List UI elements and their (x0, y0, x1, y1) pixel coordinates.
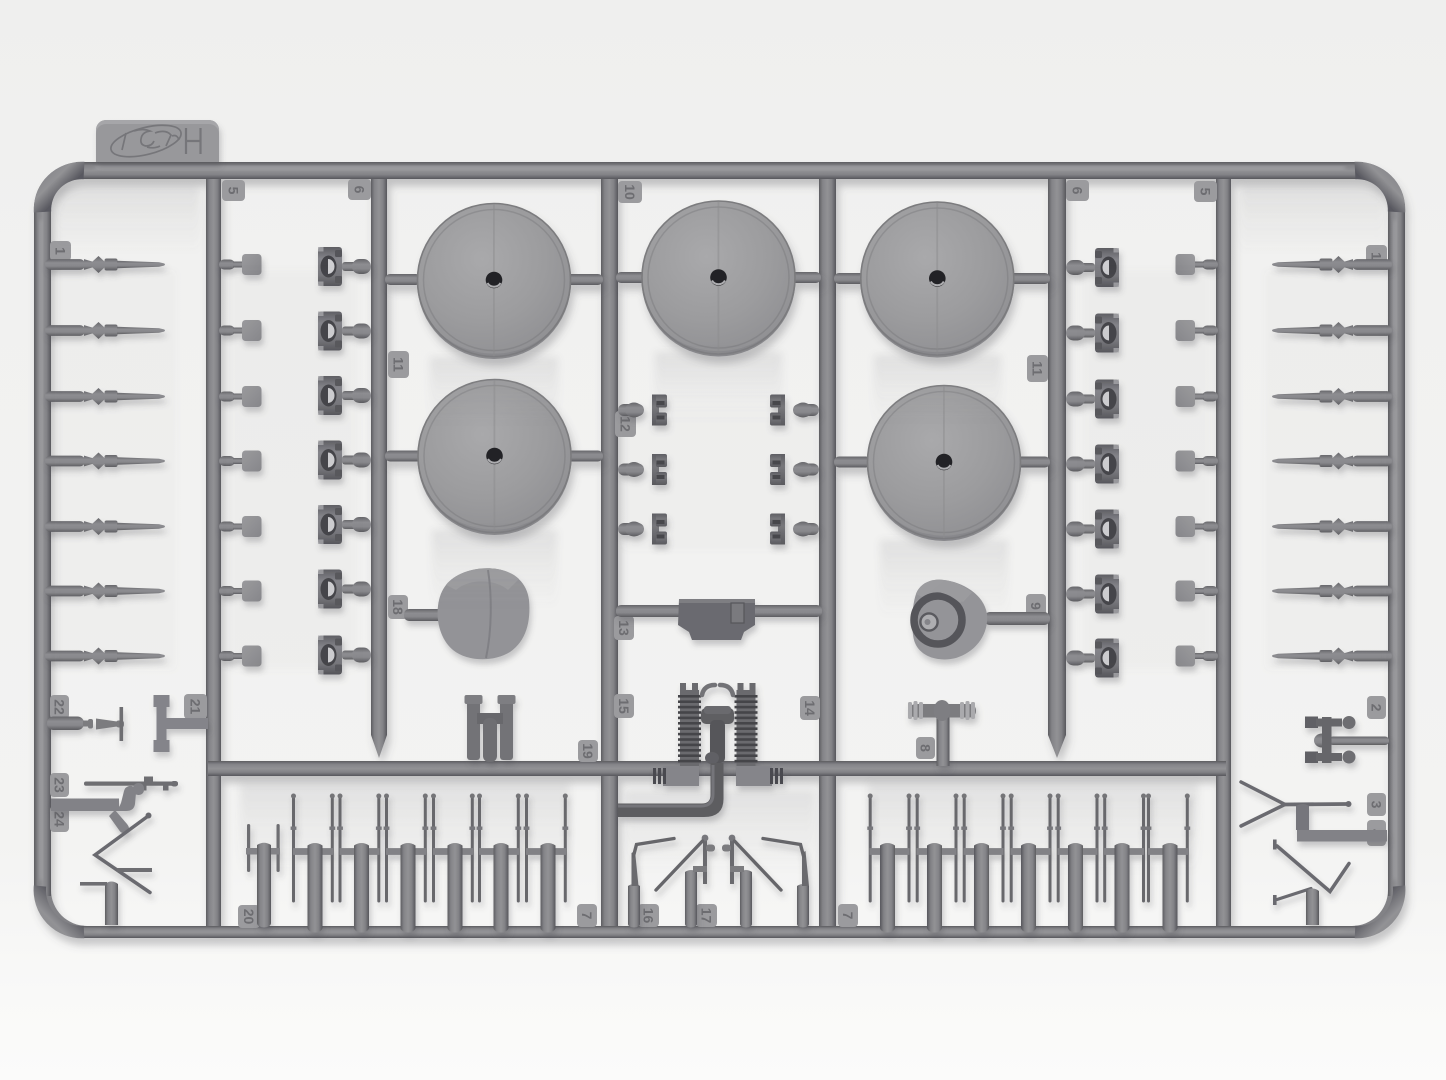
svg-text:8: 8 (918, 744, 934, 752)
svg-text:22: 22 (52, 699, 68, 715)
svg-text:9: 9 (1028, 602, 1044, 610)
svg-text:24: 24 (52, 811, 68, 827)
svg-text:6: 6 (1070, 187, 1086, 195)
svg-text:5: 5 (1198, 188, 1214, 196)
svg-text:20: 20 (241, 909, 257, 925)
svg-text:18: 18 (390, 599, 406, 615)
svg-text:11: 11 (391, 357, 407, 372)
svg-text:17: 17 (699, 908, 715, 924)
svg-text:11: 11 (1030, 361, 1046, 376)
svg-text:5: 5 (226, 187, 242, 195)
svg-text:19: 19 (580, 743, 596, 759)
svg-text:7: 7 (579, 912, 595, 920)
svg-text:16: 16 (641, 908, 657, 924)
svg-text:10: 10 (622, 184, 638, 200)
svg-text:23: 23 (52, 777, 68, 793)
svg-text:6: 6 (352, 186, 368, 194)
svg-text:3: 3 (1369, 801, 1385, 809)
svg-text:15: 15 (616, 698, 632, 714)
svg-text:2: 2 (1369, 704, 1385, 712)
svg-text:7: 7 (840, 912, 856, 920)
svg-text:13: 13 (616, 620, 632, 636)
svg-text:14: 14 (802, 700, 818, 716)
svg-text:21: 21 (188, 699, 204, 715)
